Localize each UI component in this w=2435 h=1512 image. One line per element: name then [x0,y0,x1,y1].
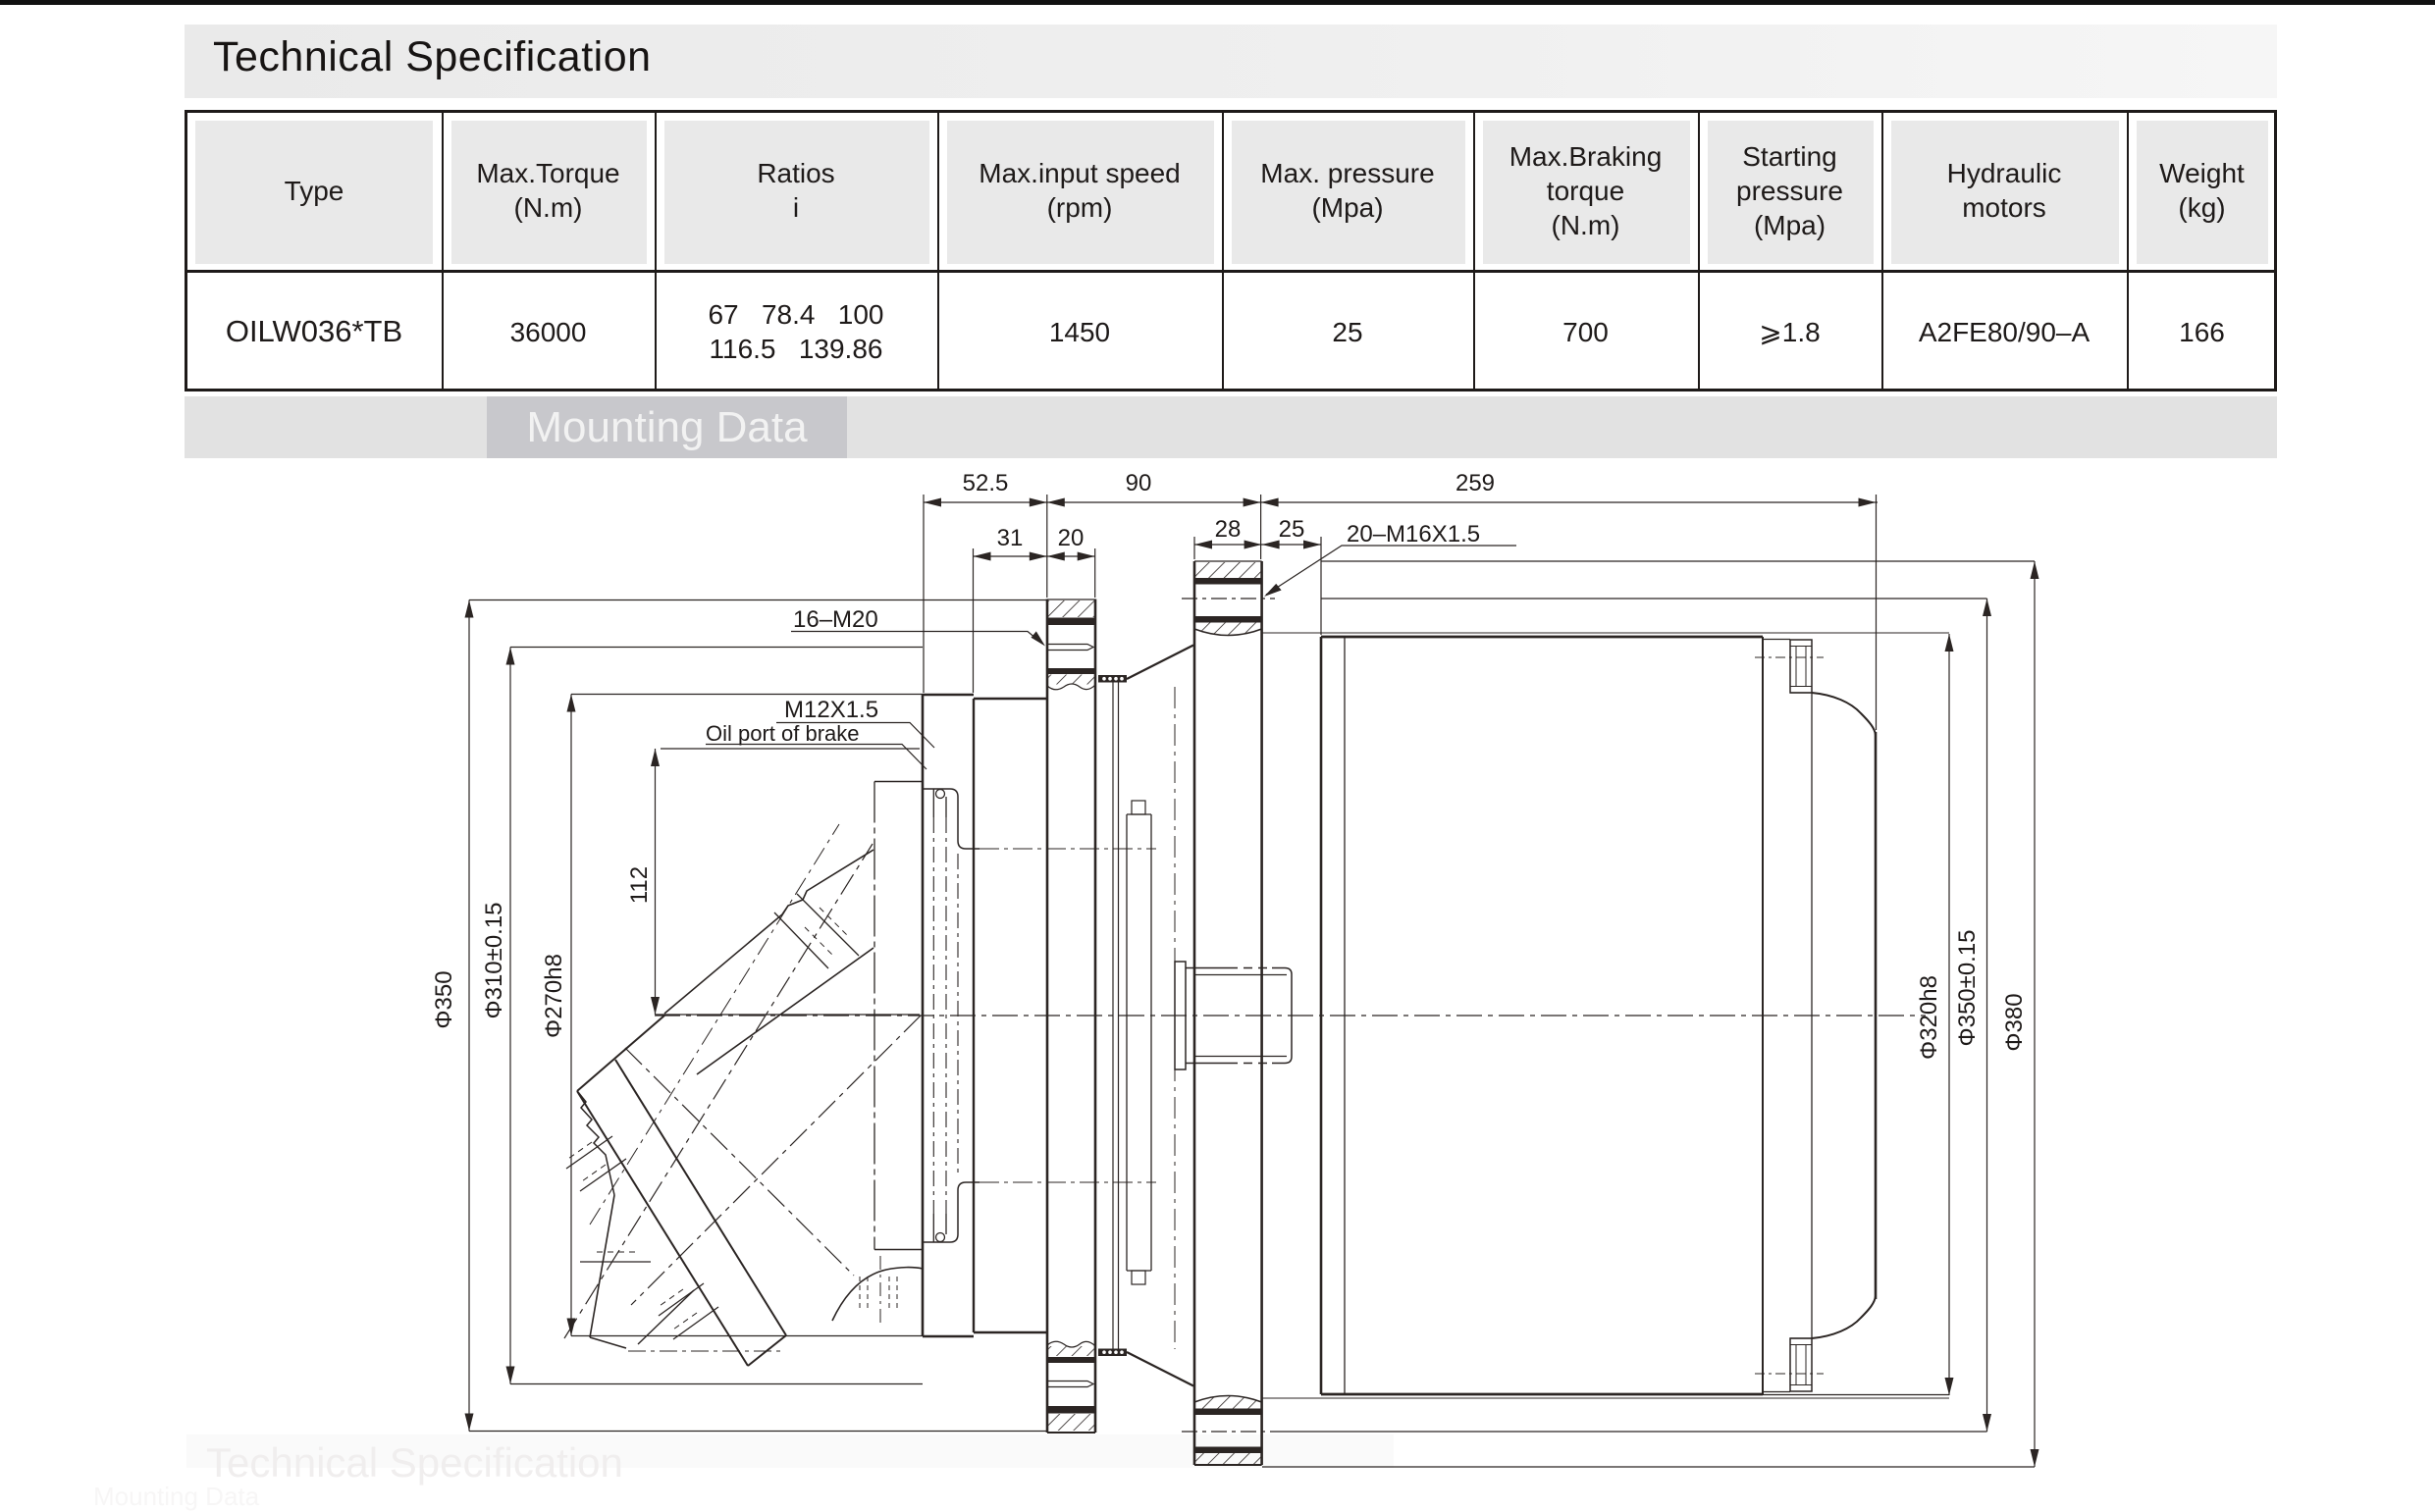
svg-text:Φ320h8: Φ320h8 [1916,975,1942,1060]
svg-text:28: 28 [1215,516,1242,543]
svg-text:52.5: 52.5 [963,470,1009,496]
svg-text:Φ350±0.15: Φ350±0.15 [1954,929,1981,1046]
svg-text:259: 259 [1456,470,1495,496]
svg-text:16–M20: 16–M20 [793,606,878,633]
svg-text:20–M16X1.5: 20–M16X1.5 [1347,521,1480,547]
svg-text:31: 31 [997,525,1024,551]
svg-text:Oil port of brake: Oil port of brake [706,721,860,746]
svg-text:90: 90 [1126,470,1152,496]
svg-text:M12X1.5: M12X1.5 [784,697,878,723]
svg-text:Φ270h8: Φ270h8 [541,954,567,1038]
svg-text:25: 25 [1279,516,1305,543]
svg-text:Φ350: Φ350 [431,970,457,1028]
svg-text:Φ380: Φ380 [2001,993,2028,1051]
svg-text:Φ310±0.15: Φ310±0.15 [481,902,507,1018]
svg-text:112: 112 [626,866,653,904]
svg-text:20: 20 [1058,525,1085,551]
